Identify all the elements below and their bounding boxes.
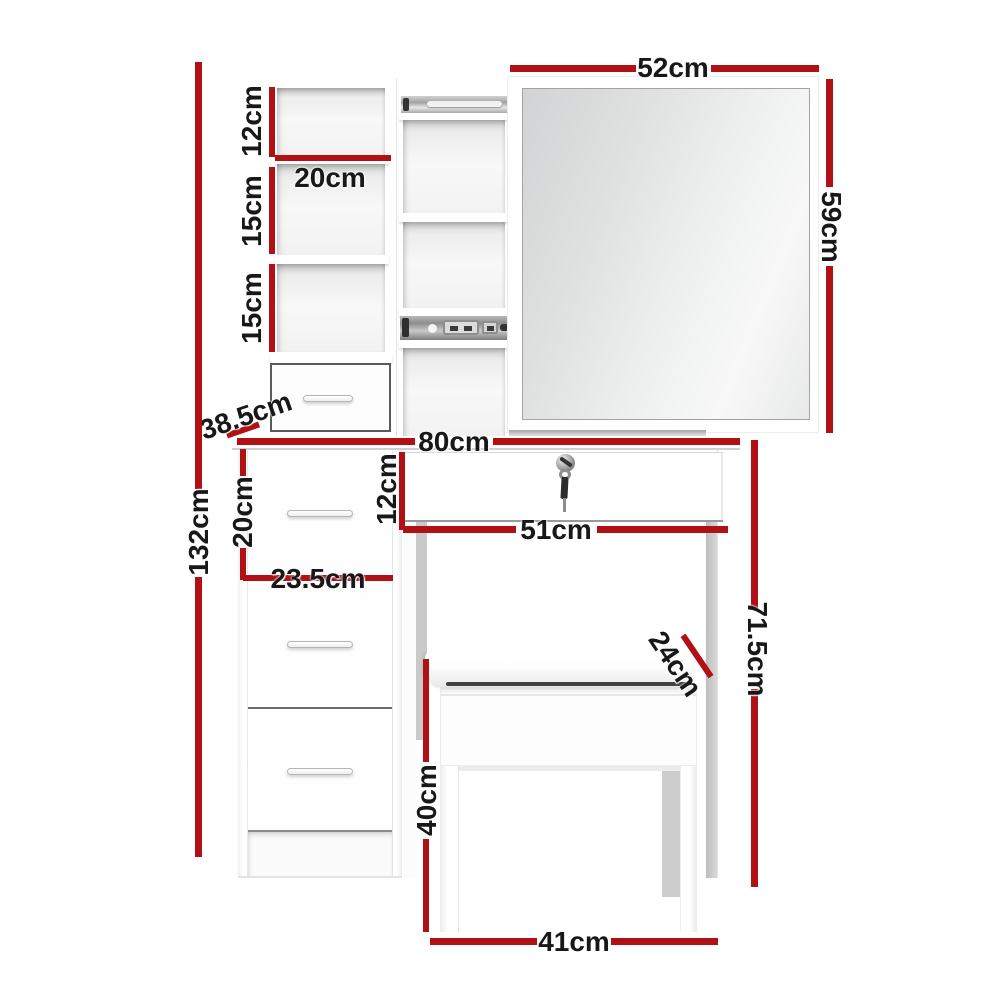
dim-line-tabletop-width — [493, 438, 740, 445]
dim-line-knee-space-height — [751, 440, 758, 608]
stool-front-left-leg — [440, 766, 459, 932]
hutch-small-drawer-handle — [303, 395, 353, 402]
dim-line-mirror-width — [711, 65, 819, 72]
shelf-board — [275, 255, 389, 264]
dim-line-lower-shelf-height — [269, 264, 275, 352]
dim-line-mirror-height — [826, 79, 833, 187]
tower-drawer-1-handle — [287, 510, 353, 517]
middle-opening-top — [403, 120, 505, 213]
drawer-slide-top — [401, 96, 509, 113]
dim-label-top-shelf-height: 12cm — [237, 85, 267, 157]
dim-line-mirror-height — [826, 266, 833, 433]
dim-line-tabletop-width — [237, 438, 415, 445]
dim-label-stool-width: 41cm — [538, 927, 610, 957]
dim-label-knee-space-height: 71.5cm — [742, 602, 772, 697]
stool-box — [440, 687, 697, 766]
slide-rivet — [428, 324, 437, 333]
slide-end-cap — [402, 318, 409, 337]
middle-opening-middle — [403, 222, 505, 308]
dim-line-top-shelf-height — [269, 87, 275, 157]
dim-line-shelf-width — [275, 155, 391, 161]
stool-underside-shadow — [459, 766, 680, 771]
dim-line-stool-leg-height — [423, 659, 429, 762]
shelf-board — [399, 113, 511, 120]
dim-label-mirror-width: 52cm — [637, 53, 709, 83]
dim-label-tabletop-width: 80cm — [418, 427, 490, 457]
dim-line-center-drawer-width — [597, 526, 728, 533]
tower-drawer-3-handle — [287, 768, 353, 775]
key-tail — [563, 498, 566, 512]
dim-line-stool-leg-height — [423, 839, 429, 932]
tower-drawer-2-handle — [287, 641, 353, 648]
slide-rail-highlight — [427, 101, 502, 107]
dim-line-knee-space-height — [751, 689, 758, 887]
drawer-slide-bottom — [400, 316, 510, 340]
slide-end-cap — [403, 98, 409, 111]
slide-carriage — [482, 321, 498, 334]
dim-line-center-drawer-width — [403, 526, 516, 533]
slide-carriage — [443, 320, 479, 335]
shelf-board — [399, 308, 513, 316]
dim-line-mirror-width — [510, 65, 636, 72]
table-right-panel-shadow — [706, 522, 717, 878]
dim-label-mirror-height: 59cm — [816, 191, 846, 263]
dim-label-lower-shelf-height: 15cm — [237, 272, 267, 344]
dim-label-center-drawer-height: 12cm — [372, 453, 402, 525]
slide-slot — [464, 326, 472, 331]
dim-label-stool-leg-height: 40cm — [412, 764, 442, 836]
tower-bottom-edge — [238, 876, 402, 878]
stool-rear-leg — [662, 765, 681, 897]
stool-front-right-leg — [680, 766, 697, 932]
dressing-table-dimension-diagram: 52cm 59cm 12cm 20cm 15cm 15cm 38.5cm 132… — [0, 0, 1000, 1000]
mirror-glass — [522, 88, 810, 420]
dim-line-overall-height — [195, 62, 202, 489]
stool-cushion-seam — [446, 682, 689, 686]
shelf-opening-bottom — [277, 264, 385, 352]
shelf-board — [399, 340, 513, 348]
dim-label-overall-height: 132cm — [184, 488, 214, 575]
slide-slot — [450, 326, 458, 331]
dim-line-middle-shelf-height — [269, 167, 275, 254]
dim-label-side-drawer-width: 23.5cm — [271, 564, 366, 594]
dim-label-middle-shelf-height: 15cm — [237, 175, 267, 247]
stool-box-top-line — [441, 694, 696, 696]
shelf-board — [270, 352, 392, 363]
shelf-board — [399, 213, 513, 222]
dim-line-side-drawer-height — [240, 449, 246, 476]
key-blade — [560, 477, 568, 499]
dim-line-stool-width — [430, 938, 537, 945]
dim-label-shelf-width: 20cm — [294, 163, 366, 193]
middle-opening-bottom — [403, 348, 505, 437]
slide-slot — [487, 326, 494, 331]
dim-line-overall-height — [195, 577, 202, 857]
tower-base-panel — [248, 832, 392, 876]
dim-label-side-drawer-height: 20cm — [228, 476, 258, 548]
shelf-opening-top — [277, 88, 385, 155]
dim-line-stool-width — [611, 938, 718, 945]
dim-label-center-drawer-width: 51cm — [520, 515, 592, 545]
